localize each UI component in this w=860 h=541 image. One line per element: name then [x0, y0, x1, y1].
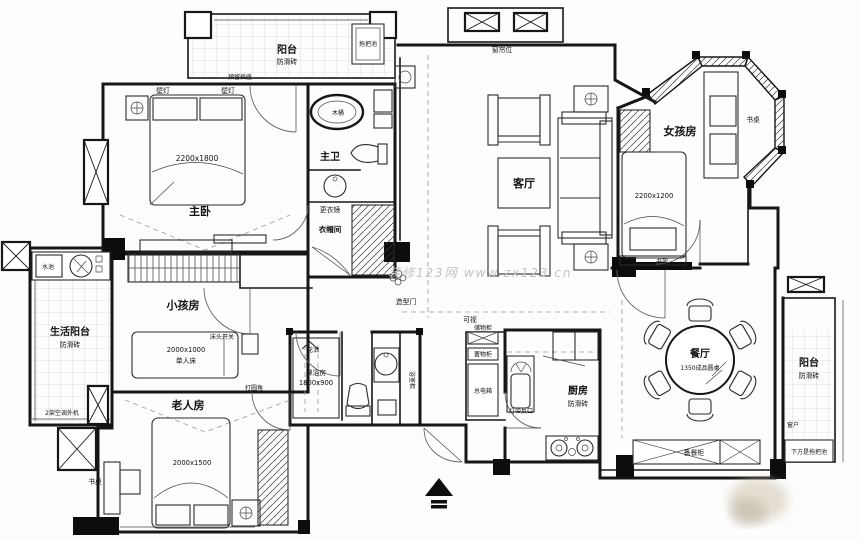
bay-joint	[778, 90, 786, 98]
storage-box-label: 储物柜	[474, 324, 492, 332]
tv-unit	[214, 235, 266, 243]
elder-bed-size: 2000x1500	[173, 459, 212, 467]
toilet	[351, 145, 378, 163]
corner-note: 打圆角	[245, 384, 263, 392]
kitchen-label: 厨房	[568, 384, 588, 397]
tub-label: 木桶	[332, 109, 344, 117]
basin	[324, 175, 346, 197]
wall-segment	[240, 254, 312, 288]
bathroom-partitions	[342, 332, 400, 425]
bay-joint	[778, 146, 786, 154]
pillow	[153, 98, 197, 120]
girls-bookshelf	[620, 110, 650, 152]
watermark-text: 装修123网 www.zx123.cn	[388, 265, 572, 280]
pillow	[630, 228, 676, 250]
shower-head-label: 花洒	[307, 346, 319, 354]
floor-plan: 装修123网 www.zx123.cn 阳台 防滑砖 拖把池 预留插座 壁灯 壁…	[0, 0, 860, 541]
entry-door-arc	[617, 270, 665, 318]
dining-chair	[687, 299, 713, 321]
master-bay-window	[84, 140, 108, 204]
mop-pool-note: 下方是拖把池	[791, 448, 827, 456]
elder-room-label: 老人房	[171, 398, 205, 412]
blanket-fold	[150, 182, 174, 205]
corner-cabinet	[395, 66, 415, 88]
faucet-fan	[511, 362, 531, 372]
living-window-xbox	[465, 13, 499, 31]
bay-joint	[692, 51, 700, 59]
bed-switch-label: 床头开关	[210, 333, 234, 341]
north-arrow-icon	[425, 478, 453, 509]
column	[770, 459, 786, 479]
desk-chair	[710, 96, 736, 126]
living-window-xbox	[514, 13, 547, 31]
blanket-line	[154, 483, 228, 498]
storage-xbox	[468, 332, 498, 344]
pillow	[200, 98, 242, 120]
life-balcony-tile-label: 防滑砖	[60, 340, 81, 349]
wash-basin-label: 水池	[42, 263, 54, 271]
elder-desk-label: 书桌	[88, 477, 102, 486]
column	[616, 455, 634, 477]
power-box-label: 总电箱	[474, 387, 492, 395]
master-bath-label: 主卫	[320, 150, 340, 163]
ac-unit-xbox	[88, 386, 108, 424]
light-strip-label: 灯带反口	[509, 407, 533, 415]
master-hall-door-arc	[273, 205, 308, 240]
right-top-xbox	[788, 277, 824, 292]
kids-bed-size: 2000x1000	[167, 346, 206, 354]
column	[493, 459, 510, 475]
wall-segment	[398, 45, 655, 102]
entry-cabinets	[468, 332, 498, 416]
watermark-logo	[728, 478, 788, 526]
bay-window-segment	[775, 96, 784, 152]
side-table	[574, 244, 608, 270]
dining-table-label: 1350成品圆桌	[680, 364, 719, 372]
master-bath-fixtures	[308, 90, 394, 275]
master-bed-size: 2200x1800	[176, 154, 219, 163]
basin	[375, 353, 397, 375]
round-table	[666, 326, 734, 394]
sofa	[558, 112, 612, 244]
shaped-door-label: 造型门	[396, 297, 417, 306]
master-bedroom-label: 主卧	[189, 204, 211, 218]
pillow	[194, 505, 228, 525]
column	[73, 517, 119, 535]
top-balcony-label: 阳台	[277, 43, 297, 56]
column	[286, 328, 293, 335]
side-table	[574, 86, 608, 112]
elder-bed	[152, 418, 230, 528]
dining-furniture	[633, 299, 760, 464]
wall-segment	[618, 96, 648, 108]
bath-cabinet	[378, 400, 396, 415]
blanket-line	[624, 216, 684, 226]
kitchen-sink	[511, 374, 530, 408]
wall-lamp-label: 壁灯	[221, 86, 235, 95]
desk-chair	[710, 134, 736, 164]
bath-shelf	[374, 114, 392, 128]
nightstand	[242, 334, 258, 354]
wall-lamp-label: 壁灯	[156, 86, 170, 95]
girls-room-label: 女孩房	[664, 124, 697, 138]
girls-desk	[704, 72, 738, 178]
mop-pool-label: 拖把池	[359, 40, 377, 48]
shelf-box-label: 置物柜	[474, 351, 492, 359]
stove	[546, 436, 598, 460]
toilet-tank	[378, 144, 387, 164]
living-room-label: 客厅	[512, 176, 535, 190]
toilet-tank	[346, 406, 370, 416]
bath-shelf	[374, 90, 392, 112]
socket-label: 预留插座	[228, 73, 252, 81]
kids-room-label: 小孩房	[166, 298, 200, 312]
dining-room-label: 餐厅	[689, 347, 710, 360]
mirror-label: 更衣镜	[320, 205, 341, 214]
bath-cabinet-label: 浴室柜	[408, 371, 416, 389]
column	[298, 520, 310, 534]
blanket-line	[152, 162, 243, 174]
girls-bed-size: 2200x1200	[635, 192, 674, 200]
bay-joint	[746, 180, 754, 188]
kids-door-arc	[204, 288, 250, 334]
column	[416, 328, 423, 335]
elder-bay-window	[58, 428, 96, 470]
floor-plan-canvas: 装修123网 www.zx123.cn 阳台 防滑砖 拖把池 预留插座 壁灯 壁…	[0, 0, 860, 541]
kitchen-tile-label: 防滑砖	[568, 399, 589, 408]
right-balcony-label: 阳台	[799, 356, 819, 369]
master-balcony-door-arc	[250, 86, 296, 132]
desk-chair	[120, 470, 140, 494]
curtain-label: 窗帘位	[492, 45, 513, 54]
wall-segment	[103, 84, 308, 254]
bay-window-segment	[698, 57, 748, 66]
window-note: 窗户	[787, 421, 799, 429]
armchair	[488, 95, 550, 145]
ac-unit-label: 2架空调外机	[45, 409, 79, 417]
kids-bed-type: 单人床	[176, 356, 197, 365]
elder-room-furniture	[104, 418, 288, 528]
cloakroom-label: 衣帽间	[319, 224, 342, 234]
elder-wardrobe	[258, 430, 288, 525]
toilet	[347, 384, 369, 409]
intercom-label: 可视	[463, 315, 477, 324]
wall-segment	[420, 425, 505, 462]
bay-joint	[742, 51, 750, 59]
elder-desk	[104, 462, 120, 514]
shower-room-label: 淋浴房	[306, 368, 327, 377]
balcony-corner-pillar	[185, 12, 211, 38]
column	[612, 257, 636, 277]
pillow	[156, 505, 190, 525]
dining-chair	[687, 399, 713, 421]
left-column-xbox	[2, 242, 30, 270]
girls-door-arc	[656, 220, 700, 264]
bay-window-segment	[648, 57, 702, 104]
elder-door-arc	[252, 392, 290, 430]
life-balcony-label: 生活阳台	[50, 325, 90, 338]
girls-desk-label: 书桌	[746, 115, 760, 124]
right-balcony-tile-label: 防滑砖	[799, 371, 820, 380]
dresser	[140, 240, 232, 252]
serving-cabinet-label: 备餐柜	[684, 448, 705, 457]
wall-segment	[750, 184, 778, 268]
bookshelf-label: 书架	[656, 258, 668, 266]
master-bedroom-furniture	[126, 95, 266, 252]
living-room-furniture	[395, 66, 612, 276]
bay-joint	[642, 88, 650, 96]
top-balcony-tile-label: 防滑砖	[277, 57, 298, 66]
shower-size: 1800x900	[299, 379, 333, 387]
